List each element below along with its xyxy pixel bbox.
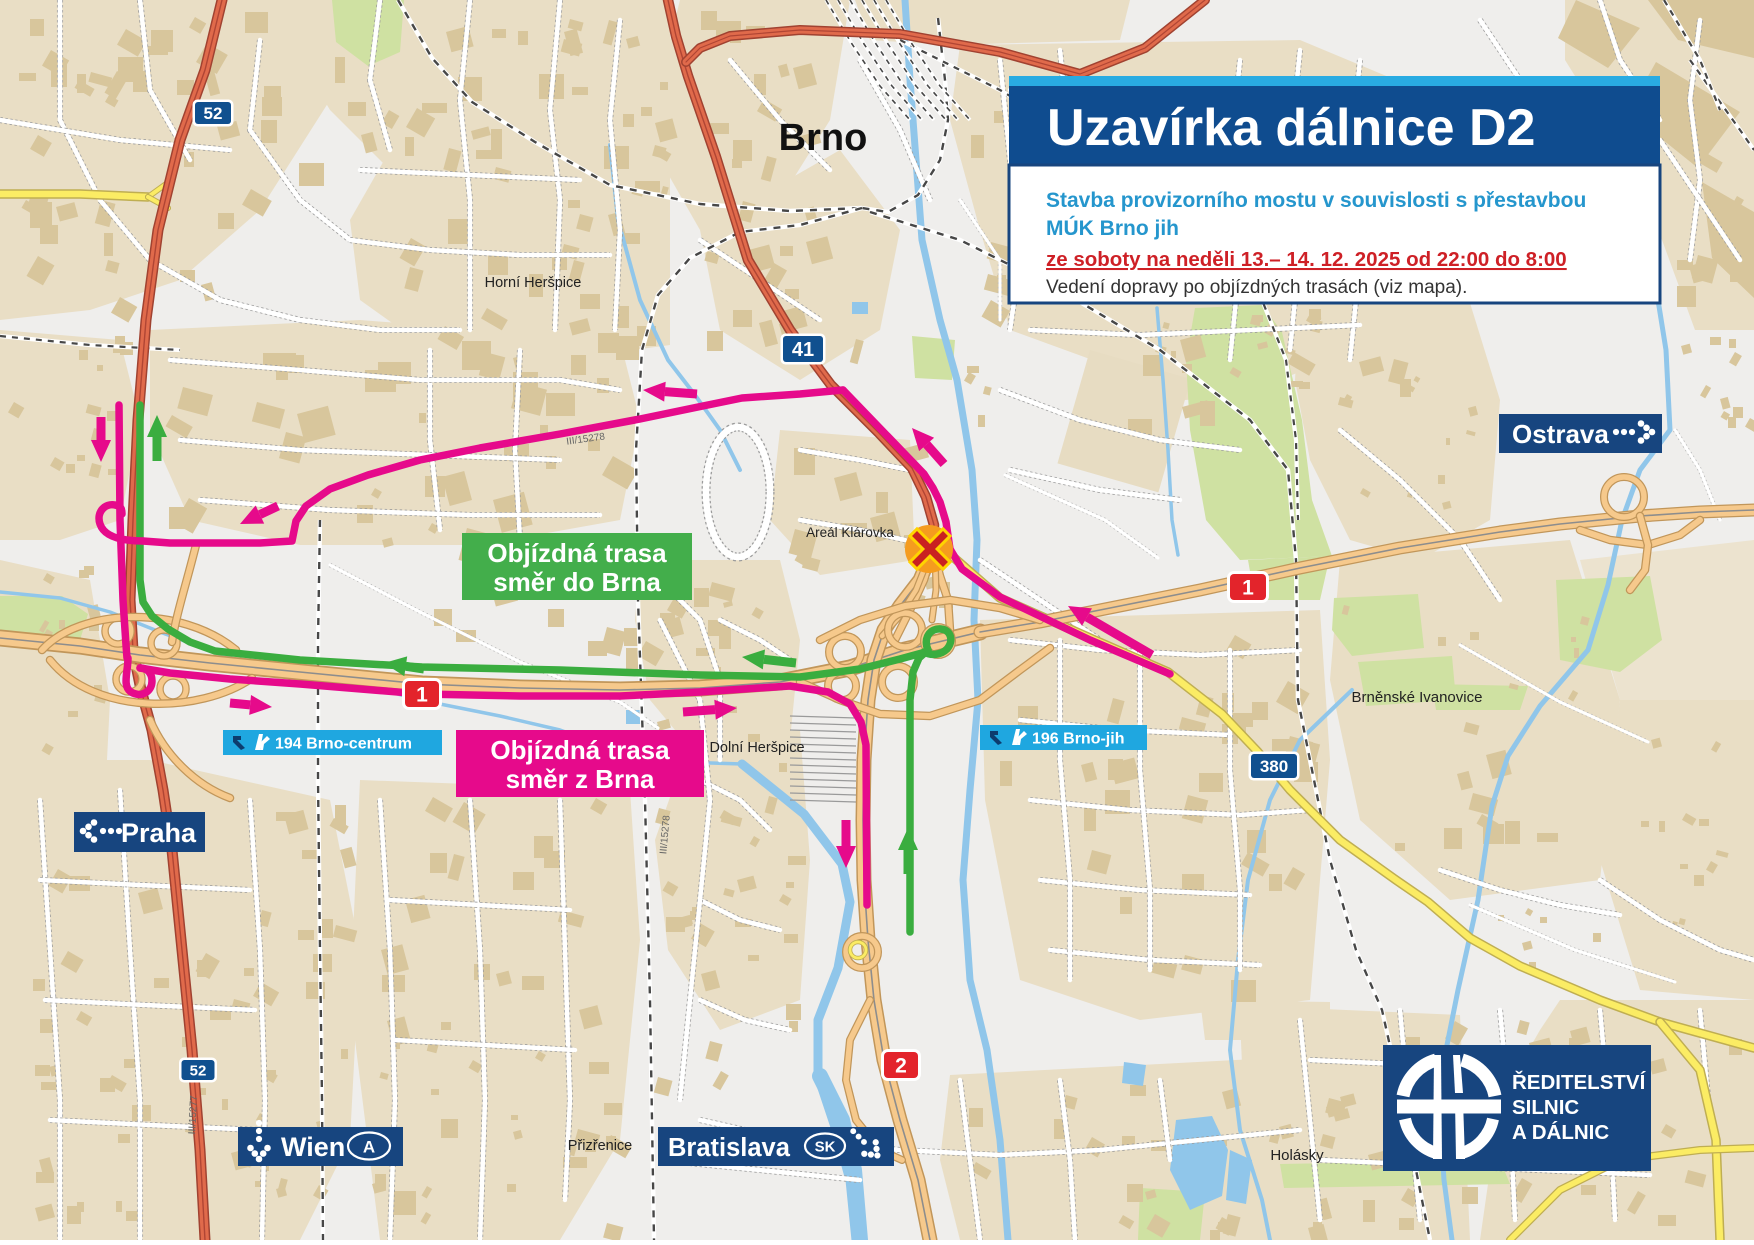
svg-text:Holásky: Holásky — [1270, 1147, 1324, 1164]
svg-text:Bratislava: Bratislava — [668, 1134, 791, 1162]
svg-text:směr do Brna: směr do Brna — [493, 567, 661, 597]
svg-text:380: 380 — [1260, 757, 1288, 776]
svg-text:Wien: Wien — [281, 1132, 345, 1162]
svg-text:41: 41 — [792, 339, 814, 361]
svg-text:ze soboty na neděli 13.– 14. 1: ze soboty na neděli 13.– 14. 12. 2025 od… — [1046, 248, 1567, 271]
svg-text:1: 1 — [1242, 577, 1254, 600]
svg-text:Uzavírka dálnice D2: Uzavírka dálnice D2 — [1047, 99, 1535, 157]
svg-text:Brněnské Ivanovice: Brněnské Ivanovice — [1352, 689, 1483, 706]
svg-text:SK: SK — [815, 1139, 836, 1156]
svg-text:MÚK Brno jih: MÚK Brno jih — [1046, 216, 1179, 240]
svg-text:Ostrava: Ostrava — [1512, 419, 1609, 449]
svg-text:Objízdná trasa: Objízdná trasa — [490, 735, 670, 765]
svg-text:Areál Klárovka: Areál Klárovka — [806, 525, 894, 540]
svg-text:196 Brno-jih: 196 Brno-jih — [1032, 731, 1124, 748]
svg-text:A DÁLNIC: A DÁLNIC — [1512, 1121, 1609, 1144]
svg-text:Vedení dopravy po objízdných t: Vedení dopravy po objízdných trasách (vi… — [1046, 277, 1467, 298]
svg-text:SILNIC: SILNIC — [1512, 1096, 1579, 1119]
svg-text:ŘEDITELSTVÍ: ŘEDITELSTVÍ — [1512, 1070, 1647, 1094]
svg-text:2: 2 — [895, 1055, 907, 1078]
svg-text:III/15277: III/15277 — [187, 1095, 200, 1135]
svg-text:Brno: Brno — [779, 117, 868, 159]
svg-text:Stavba provizorního mostu v so: Stavba provizorního mostu v souvislosti … — [1046, 189, 1586, 212]
svg-text:Objízdná trasa: Objízdná trasa — [487, 538, 667, 568]
svg-text:směr z Brna: směr z Brna — [506, 764, 655, 794]
svg-text:52: 52 — [204, 104, 223, 123]
svg-text:52: 52 — [190, 1062, 207, 1079]
svg-text:194 Brno-centrum: 194 Brno-centrum — [275, 736, 412, 753]
svg-text:Praha: Praha — [121, 818, 197, 848]
svg-text:1: 1 — [416, 684, 428, 707]
svg-text:Přizřenice: Přizřenice — [568, 1138, 632, 1154]
svg-text:Horní Heršpice: Horní Heršpice — [485, 275, 582, 291]
svg-text:A: A — [363, 1138, 375, 1157]
svg-text:Dolní Heršpice: Dolní Heršpice — [709, 740, 804, 756]
